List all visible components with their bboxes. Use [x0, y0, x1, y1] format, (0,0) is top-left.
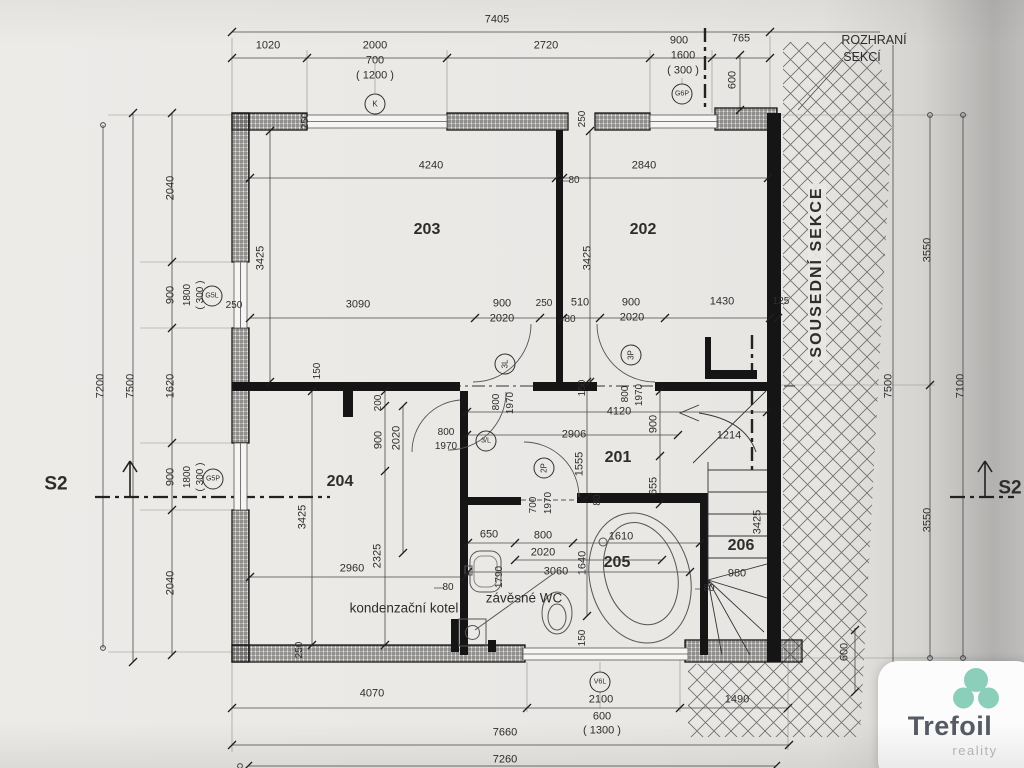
- dim-label: 1490: [725, 695, 749, 706]
- dim-label: 655: [649, 477, 660, 495]
- annotation-layer: 740510202000700( 1200 )27209001600( 300 …: [0, 0, 1024, 768]
- dim-label: 800: [492, 394, 502, 411]
- dim-label: 1800: [183, 466, 193, 488]
- room-number-202: 202: [630, 222, 657, 238]
- dim-label: 2040: [166, 176, 177, 200]
- dim-label: 2906: [562, 430, 586, 441]
- dim-label: 2020: [392, 426, 403, 450]
- dim-label: 150: [313, 363, 323, 380]
- dim-label: 2720: [534, 41, 558, 52]
- window-ref-g5l: G5L: [202, 286, 223, 307]
- dim-label: 1620: [166, 374, 177, 398]
- dim-label: 3060: [544, 567, 568, 578]
- dim-label: 2020: [531, 548, 555, 559]
- dim-label: 3425: [753, 510, 764, 534]
- dim-label: 600: [840, 643, 851, 661]
- dim-label: 250: [295, 642, 305, 659]
- dim-label: 3090: [346, 300, 370, 311]
- window-ref-g6p: G6P: [672, 84, 693, 105]
- room-number-203: 203: [414, 222, 441, 238]
- room-number-204: 204: [327, 474, 354, 490]
- dim-label: ( 1200 ): [356, 71, 394, 82]
- scanned-floorplan-sheet: 740510202000700( 1200 )27209001600( 300 …: [0, 0, 1024, 768]
- section-mark-s2-right: S2: [998, 479, 1021, 498]
- dim-label: 900: [166, 468, 177, 486]
- dim-label: 800: [438, 428, 455, 438]
- door-ref-3p: 3P: [621, 345, 642, 366]
- dim-label: 700: [529, 497, 539, 514]
- dim-label: 1970: [435, 442, 457, 452]
- dim-label: 7405: [485, 15, 509, 26]
- dim-label: 150: [578, 380, 588, 397]
- dim-label: 2040: [166, 571, 177, 595]
- wc-label: závěsné WC: [486, 591, 563, 605]
- logo-subtitle: reality: [878, 743, 1022, 758]
- dim-label: 650: [480, 530, 498, 541]
- section-boundary-label: SEKCÍ: [843, 51, 881, 64]
- dim-label: 7200: [96, 374, 107, 398]
- dim-label: 600: [593, 712, 611, 723]
- dim-label: 250: [226, 301, 243, 311]
- dim-label: 1020: [256, 41, 280, 52]
- dim-label: 765: [732, 34, 750, 45]
- dim-label: ( 1300 ): [583, 726, 621, 737]
- dim-label: 4120: [607, 407, 631, 418]
- dim-label: 3425: [256, 246, 267, 270]
- dim-label: 150: [578, 630, 588, 647]
- dim-label: 2100: [589, 695, 613, 706]
- dim-label: 200: [374, 395, 384, 412]
- dim-label: 80: [593, 494, 603, 505]
- trefoil-clover-icon: [950, 667, 1002, 711]
- dim-label: 900: [374, 431, 385, 449]
- dim-label: 2840: [632, 161, 656, 172]
- window-ref-g5p: G5P: [203, 469, 224, 490]
- door-ref-3l-2: 3/L: [476, 431, 497, 452]
- dim-label: 900: [649, 415, 660, 433]
- dim-label: 4240: [419, 161, 443, 172]
- dim-label: 1430: [710, 297, 734, 308]
- dim-label: 1600: [671, 51, 695, 62]
- dim-label: 3550: [923, 508, 934, 532]
- dim-label: 1970: [635, 384, 645, 406]
- dim-label: 80: [568, 176, 579, 186]
- dim-label: 3425: [583, 246, 594, 270]
- dim-label: 7100: [956, 374, 967, 398]
- dim-label: 7500: [126, 374, 137, 398]
- window-ref-v6l: V6L: [590, 672, 611, 693]
- door-ref-3l: 3L: [495, 354, 516, 375]
- dim-label: 2325: [373, 544, 384, 568]
- section-boundary-label: ROZHRANÍ: [841, 34, 906, 47]
- dim-label: 80: [564, 315, 575, 325]
- dim-label: 2020: [490, 314, 514, 325]
- dim-label: 1970: [544, 492, 554, 514]
- dim-label: 1800: [183, 284, 193, 306]
- dim-label: 700: [366, 56, 384, 67]
- dim-label: 2000: [363, 41, 387, 52]
- dim-label: 900: [670, 36, 688, 47]
- boiler-label: kondenzační kotel: [350, 601, 459, 615]
- dim-label: 900: [493, 299, 511, 310]
- door-ref-2p: 2P: [534, 458, 555, 479]
- dim-label: 900: [166, 286, 177, 304]
- dim-label: 3425: [298, 505, 309, 529]
- window-ref-k: K: [365, 94, 386, 115]
- dim-label: 2960: [340, 564, 364, 575]
- room-number-205: 205: [604, 555, 631, 571]
- dim-label: 510: [571, 298, 589, 309]
- logo-brand: Trefoil: [878, 711, 1022, 742]
- dim-label: 3550: [923, 238, 934, 262]
- dim-label: 7660: [493, 728, 517, 739]
- dim-label: 600: [728, 71, 739, 89]
- dim-label: 1610: [609, 532, 633, 543]
- adjacent-section-label: SOUSEDNÍ SEKCE: [808, 183, 826, 360]
- room-number-201: 201: [605, 450, 632, 466]
- dim-label: 1640: [578, 551, 589, 575]
- dim-label: 800: [534, 531, 552, 542]
- dim-label: 2020: [620, 313, 644, 324]
- dim-label: 250: [536, 299, 553, 309]
- dim-label: ( 300 ): [667, 66, 699, 77]
- dim-label: 7260: [493, 755, 517, 766]
- section-mark-s2-left: S2: [44, 475, 67, 494]
- room-number-206: 206: [728, 538, 755, 554]
- dim-label: 1214: [717, 431, 741, 442]
- dim-label: 4070: [360, 689, 384, 700]
- dim-label: 1555: [575, 452, 586, 476]
- dim-label: 80: [442, 583, 453, 593]
- dim-label: 900: [622, 298, 640, 309]
- dim-label: 7500: [884, 374, 895, 398]
- dim-label: 125: [773, 297, 790, 307]
- dim-label: 1790: [495, 566, 505, 588]
- dim-label: 800: [621, 386, 631, 403]
- dim-label: 980: [728, 569, 746, 580]
- dim-label: 250: [301, 113, 311, 130]
- logo-card: Trefoil reality: [878, 661, 1024, 768]
- dim-label: 1970: [506, 392, 516, 414]
- dim-label: 80: [703, 584, 714, 594]
- dim-label: 250: [578, 111, 588, 128]
